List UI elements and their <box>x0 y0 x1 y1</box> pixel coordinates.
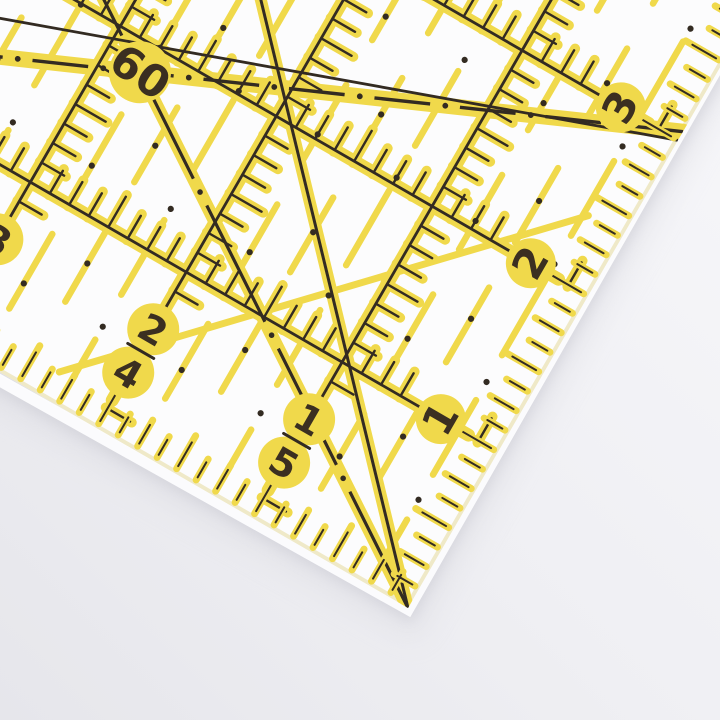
ruler-photo: 1 5 2 4 3 3 <box>0 0 720 720</box>
ruler-photo-canvas: 1 5 2 4 3 3 <box>0 0 720 720</box>
